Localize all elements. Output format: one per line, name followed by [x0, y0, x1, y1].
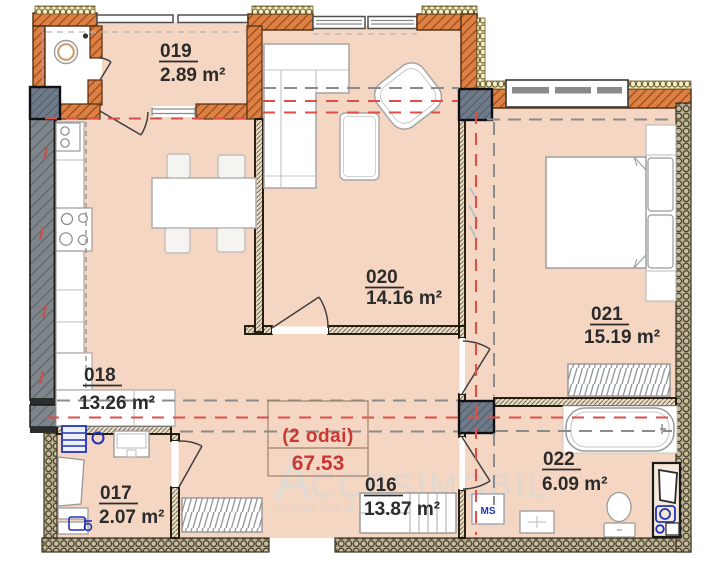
svg-text:15.19 m²: 15.19 m² [584, 327, 660, 348]
svg-text:021: 021 [591, 304, 623, 325]
svg-text:13.87 m²: 13.87 m² [364, 499, 440, 520]
svg-text:2.89 m²: 2.89 m² [160, 65, 225, 86]
svg-text:022: 022 [543, 449, 575, 470]
svg-text:13.26 m²: 13.26 m² [79, 393, 155, 414]
svg-text:(2 odai): (2 odai) [282, 426, 354, 447]
svg-text:MS: MS [481, 506, 496, 517]
svg-text:017: 017 [100, 483, 132, 504]
svg-text:019: 019 [160, 41, 192, 62]
svg-text:016: 016 [365, 475, 397, 496]
svg-text:14.16 m²: 14.16 m² [366, 288, 442, 309]
svg-text:2.07 m²: 2.07 m² [99, 507, 164, 528]
svg-text:67.53: 67.53 [292, 452, 345, 475]
svg-text:018: 018 [84, 365, 116, 386]
svg-text:020: 020 [366, 267, 398, 288]
svg-text:6.09 m²: 6.09 m² [542, 474, 607, 495]
